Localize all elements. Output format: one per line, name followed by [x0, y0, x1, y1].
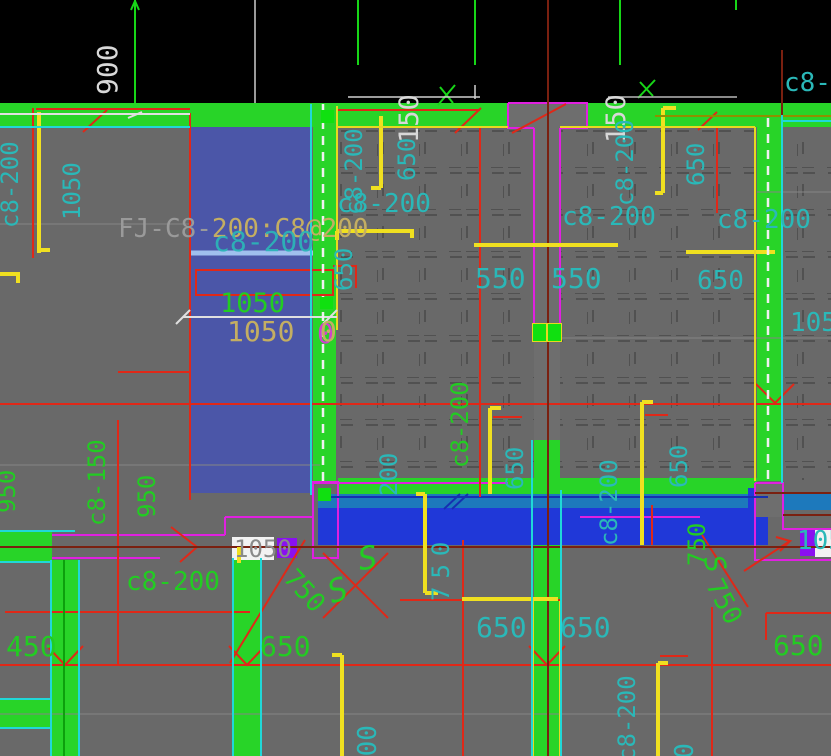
dim-650-bc1: 650: [476, 614, 527, 642]
dim-650-wall-v: 650: [332, 248, 356, 291]
label-c8-200-h1: c8-200: [337, 191, 431, 217]
grip-green-beam-b[interactable]: [547, 323, 562, 342]
dim-650-bl: 650: [260, 633, 311, 661]
dim-200-teal-v: 200: [377, 453, 401, 496]
grip-green-mid[interactable]: [320, 297, 333, 309]
dim-550-a: 550: [475, 265, 526, 293]
dim-650-right-h: 650: [697, 268, 744, 294]
slab-boundary-magenta: [52, 103, 831, 560]
dim-900-bot2-v: 900: [672, 743, 698, 756]
grip-green-beam-a[interactable]: [532, 323, 547, 342]
dim-650-br: 650: [773, 632, 824, 660]
label-c8-200-mid-v: c8-200: [613, 119, 637, 206]
label-c8-200-green-v: c8-200: [448, 381, 472, 468]
dim-650-bc2: 650: [560, 614, 611, 642]
dim-0-tan: 0: [320, 318, 337, 346]
dim-450: 450: [6, 633, 57, 661]
label-c8-200-left-v: c8-200: [0, 141, 22, 228]
label-c8-200-bot-v: c8-200: [615, 675, 639, 756]
dim-1050-right-clip: 1050: [790, 310, 831, 336]
grip-green-top[interactable]: [321, 110, 334, 123]
dim-150-left-v: 150: [396, 94, 423, 143]
fj-callout-prefix: FJ-C8-: [118, 214, 212, 244]
dim-950-a-v: 950: [135, 475, 159, 518]
dim-550-b: 550: [551, 265, 602, 293]
dim-650-band-v2: 650: [667, 445, 691, 488]
beam-band-navy-lines: [320, 494, 768, 509]
label-c8-2-corner: c8-2: [784, 70, 831, 96]
dim-1050-clip-right-text: 1050: [797, 528, 831, 554]
dim-1050-box-text: 1050: [234, 537, 292, 561]
dim-650-topright-v: 650: [684, 143, 708, 186]
dim-900-top: 900: [94, 44, 122, 95]
label-c8-200-green-h: c8-200: [126, 569, 220, 595]
dim-750-cyan-v: 750: [429, 534, 453, 601]
white-dimension-lines: [0, 85, 768, 483]
dim-1050-green: 1050: [220, 290, 285, 317]
dim-900-bot1-v: 900: [355, 725, 381, 756]
label-c8-150-v: c8-150: [85, 439, 109, 526]
cad-canvas[interactable]: 900 FJ-C8-200:C8@200 c8-200 1050 1050 0 …: [0, 0, 831, 756]
label-c8-200-h2: c8-200: [562, 204, 656, 230]
grip-green-band[interactable]: [318, 488, 331, 501]
dim-1050-tan: 1050: [227, 318, 294, 346]
label-c8-200-big: c8-200: [213, 228, 314, 256]
dim-1050-left-v: 1050: [60, 162, 84, 220]
dim-950-b-v: 950: [0, 470, 19, 513]
label-c8-200-h3: c8-200: [717, 207, 811, 233]
dim-650-band-v1: 650: [503, 447, 527, 490]
dim-650-topleft-v: 650: [395, 138, 419, 181]
label-c8-200-band-v: c8-200: [597, 459, 621, 546]
